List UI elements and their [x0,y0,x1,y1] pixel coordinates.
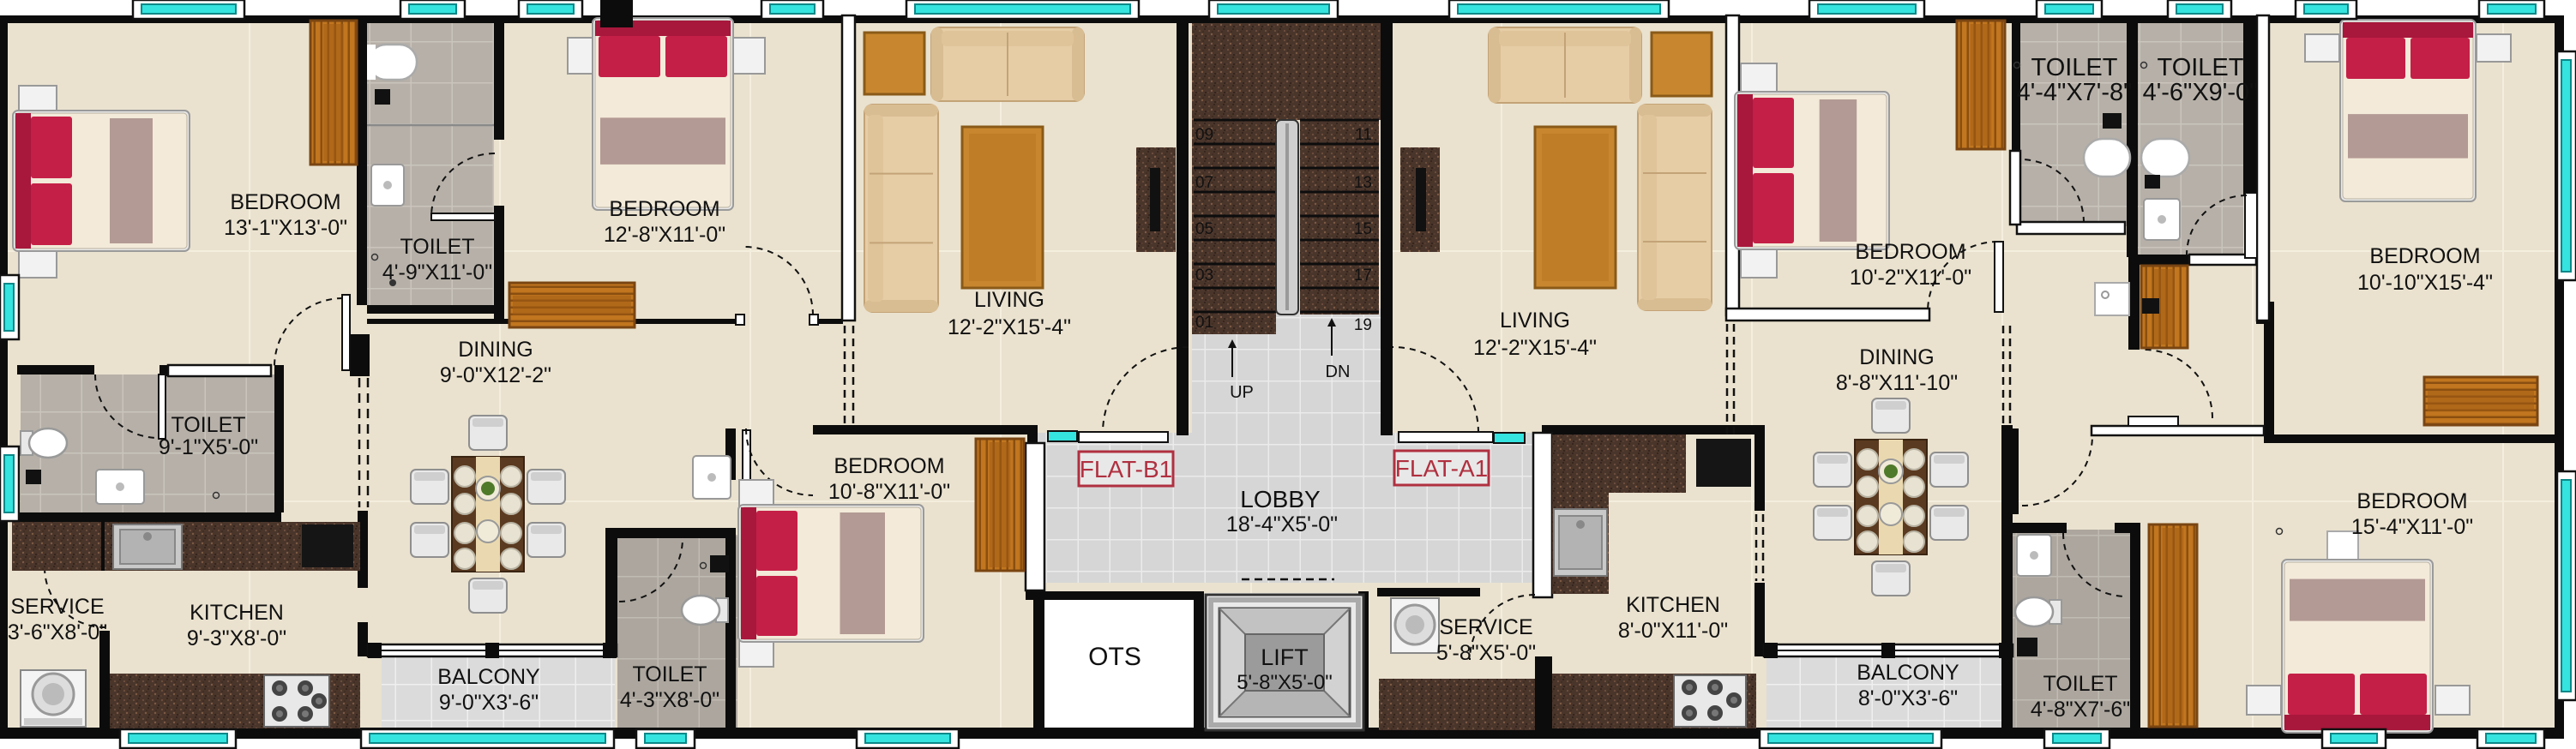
svg-text:BEDROOM: BEDROOM [230,190,340,214]
svg-text:09: 09 [1195,126,1213,144]
svg-text:BEDROOM: BEDROOM [1855,240,1965,264]
svg-text:TOILET: TOILET [171,413,245,437]
svg-text:4'-6"X9'-0": 4'-6"X9'-0" [2143,79,2259,106]
svg-text:DINING: DINING [458,338,533,362]
svg-text:SERVICE: SERVICE [1439,615,1532,639]
svg-text:LOBBY: LOBBY [1240,486,1321,512]
svg-text:11: 11 [1355,126,1372,144]
svg-text:15'-4"X11'-0": 15'-4"X11'-0" [2351,515,2473,539]
svg-text:18'-4"X5'-0": 18'-4"X5'-0" [1226,512,1338,536]
svg-text:15: 15 [1354,220,1372,238]
svg-text:8'-0"X3'-6": 8'-0"X3'-6" [1858,686,1958,710]
svg-text:TOILET: TOILET [2031,54,2118,81]
svg-text:8'-0"X11'-0": 8'-0"X11'-0" [1618,619,1728,643]
svg-text:12'-8"X11'-0": 12'-8"X11'-0" [604,223,725,247]
svg-text:9'-0"X12'-2": 9'-0"X12'-2" [440,363,551,387]
svg-text:07: 07 [1195,174,1213,192]
svg-text:13: 13 [1354,174,1372,192]
svg-text:12'-2"X15'-4": 12'-2"X15'-4" [948,315,1071,339]
svg-text:BALCONY: BALCONY [437,665,540,689]
svg-text:4'-3"X8'-0": 4'-3"X8'-0" [620,688,719,712]
svg-text:BEDROOM: BEDROOM [2369,244,2480,268]
svg-text:10'-8"X11'-0": 10'-8"X11'-0" [828,480,950,504]
svg-text:BEDROOM: BEDROOM [834,454,944,478]
svg-text:FLAT-B1: FLAT-B1 [1080,456,1172,482]
svg-text:TOILET: TOILET [2043,672,2117,696]
svg-text:KITCHEN: KITCHEN [1626,593,1720,617]
svg-text:9'-1"X5'-0": 9'-1"X5'-0" [159,435,258,459]
svg-text:8'-8"X11'-10": 8'-8"X11'-10" [1836,371,1958,395]
svg-text:FLAT-A1: FLAT-A1 [1395,455,1488,482]
svg-text:DN: DN [1326,363,1351,381]
svg-text:01: 01 [1195,314,1213,332]
svg-text:UP: UP [1230,383,1254,402]
svg-text:5'-8"X5'-0": 5'-8"X5'-0" [1436,641,1536,665]
svg-text:DINING: DINING [1859,345,1935,369]
svg-text:TOILET: TOILET [632,662,707,686]
svg-text:10'-2"X11'-0": 10'-2"X11'-0" [1850,266,1971,290]
svg-text:BEDROOM: BEDROOM [609,197,719,221]
svg-text:05: 05 [1195,220,1213,238]
svg-text:4'-8"X7'-6": 4'-8"X7'-6" [2031,698,2130,722]
svg-text:BEDROOM: BEDROOM [2356,489,2467,513]
svg-text:10'-10"X15'-4": 10'-10"X15'-4" [2357,271,2493,295]
svg-text:9'-3"X8'-0": 9'-3"X8'-0" [187,626,286,650]
svg-text:4'-9"X11'-0": 4'-9"X11'-0" [382,261,492,285]
svg-text:4'-4"X7'-8": 4'-4"X7'-8" [2017,79,2133,106]
svg-text:LIVING: LIVING [1500,309,1570,333]
svg-text:OTS: OTS [1088,643,1141,671]
svg-text:03: 03 [1195,267,1213,285]
svg-text:LIVING: LIVING [974,288,1044,312]
svg-text:13'-1"X13'-0": 13'-1"X13'-0" [224,216,347,240]
svg-text:KITCHEN: KITCHEN [190,601,284,625]
svg-text:LIFT: LIFT [1261,644,1309,670]
svg-text:3'-6"X8'-0": 3'-6"X8'-0" [8,620,107,644]
svg-text:TOILET: TOILET [2158,54,2244,81]
svg-text:17: 17 [1354,267,1372,285]
svg-text:BALCONY: BALCONY [1857,661,1959,685]
svg-text:5'-8"X5'-0": 5'-8"X5'-0" [1237,671,1333,694]
svg-text:12'-2"X15'-4": 12'-2"X15'-4" [1473,336,1597,360]
svg-text:SERVICE: SERVICE [10,595,104,619]
svg-text:TOILET: TOILET [400,235,474,259]
svg-text:19: 19 [1354,316,1372,334]
svg-text:9'-0"X3'-6": 9'-0"X3'-6" [439,691,539,715]
